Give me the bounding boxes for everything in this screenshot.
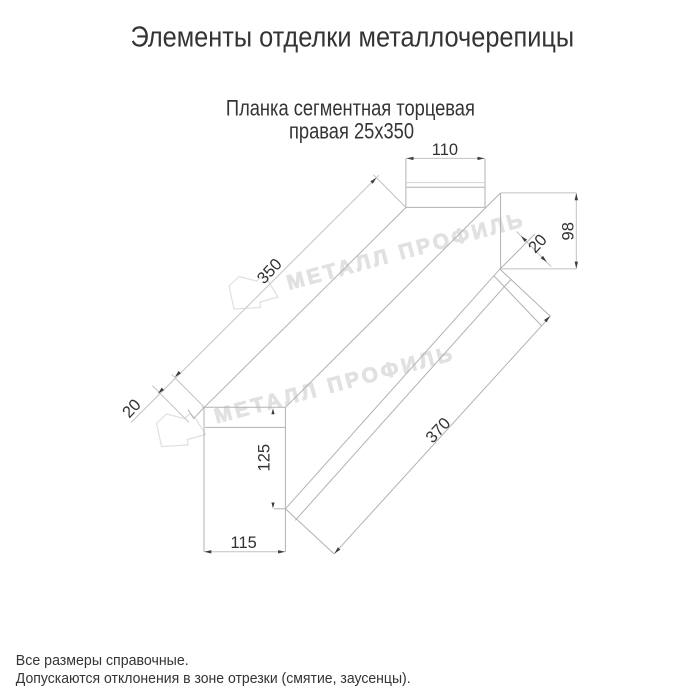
svg-text:Планка сегментная торцевая: Планка сегментная торцевая	[226, 97, 475, 121]
svg-text:Элементы отделки металлочерепи: Элементы отделки металлочерепицы	[130, 21, 574, 53]
svg-text:110: 110	[432, 141, 458, 159]
svg-text:Допускаются отклонения в зоне: Допускаются отклонения в зоне отрезки (с…	[16, 671, 411, 688]
svg-text:125: 125	[256, 444, 274, 472]
svg-text:98: 98	[559, 222, 577, 240]
svg-text:115: 115	[231, 534, 257, 552]
svg-text:Все размеры справочные.: Все размеры справочные.	[16, 653, 189, 669]
svg-text:правая 25х350: правая 25х350	[289, 120, 414, 144]
